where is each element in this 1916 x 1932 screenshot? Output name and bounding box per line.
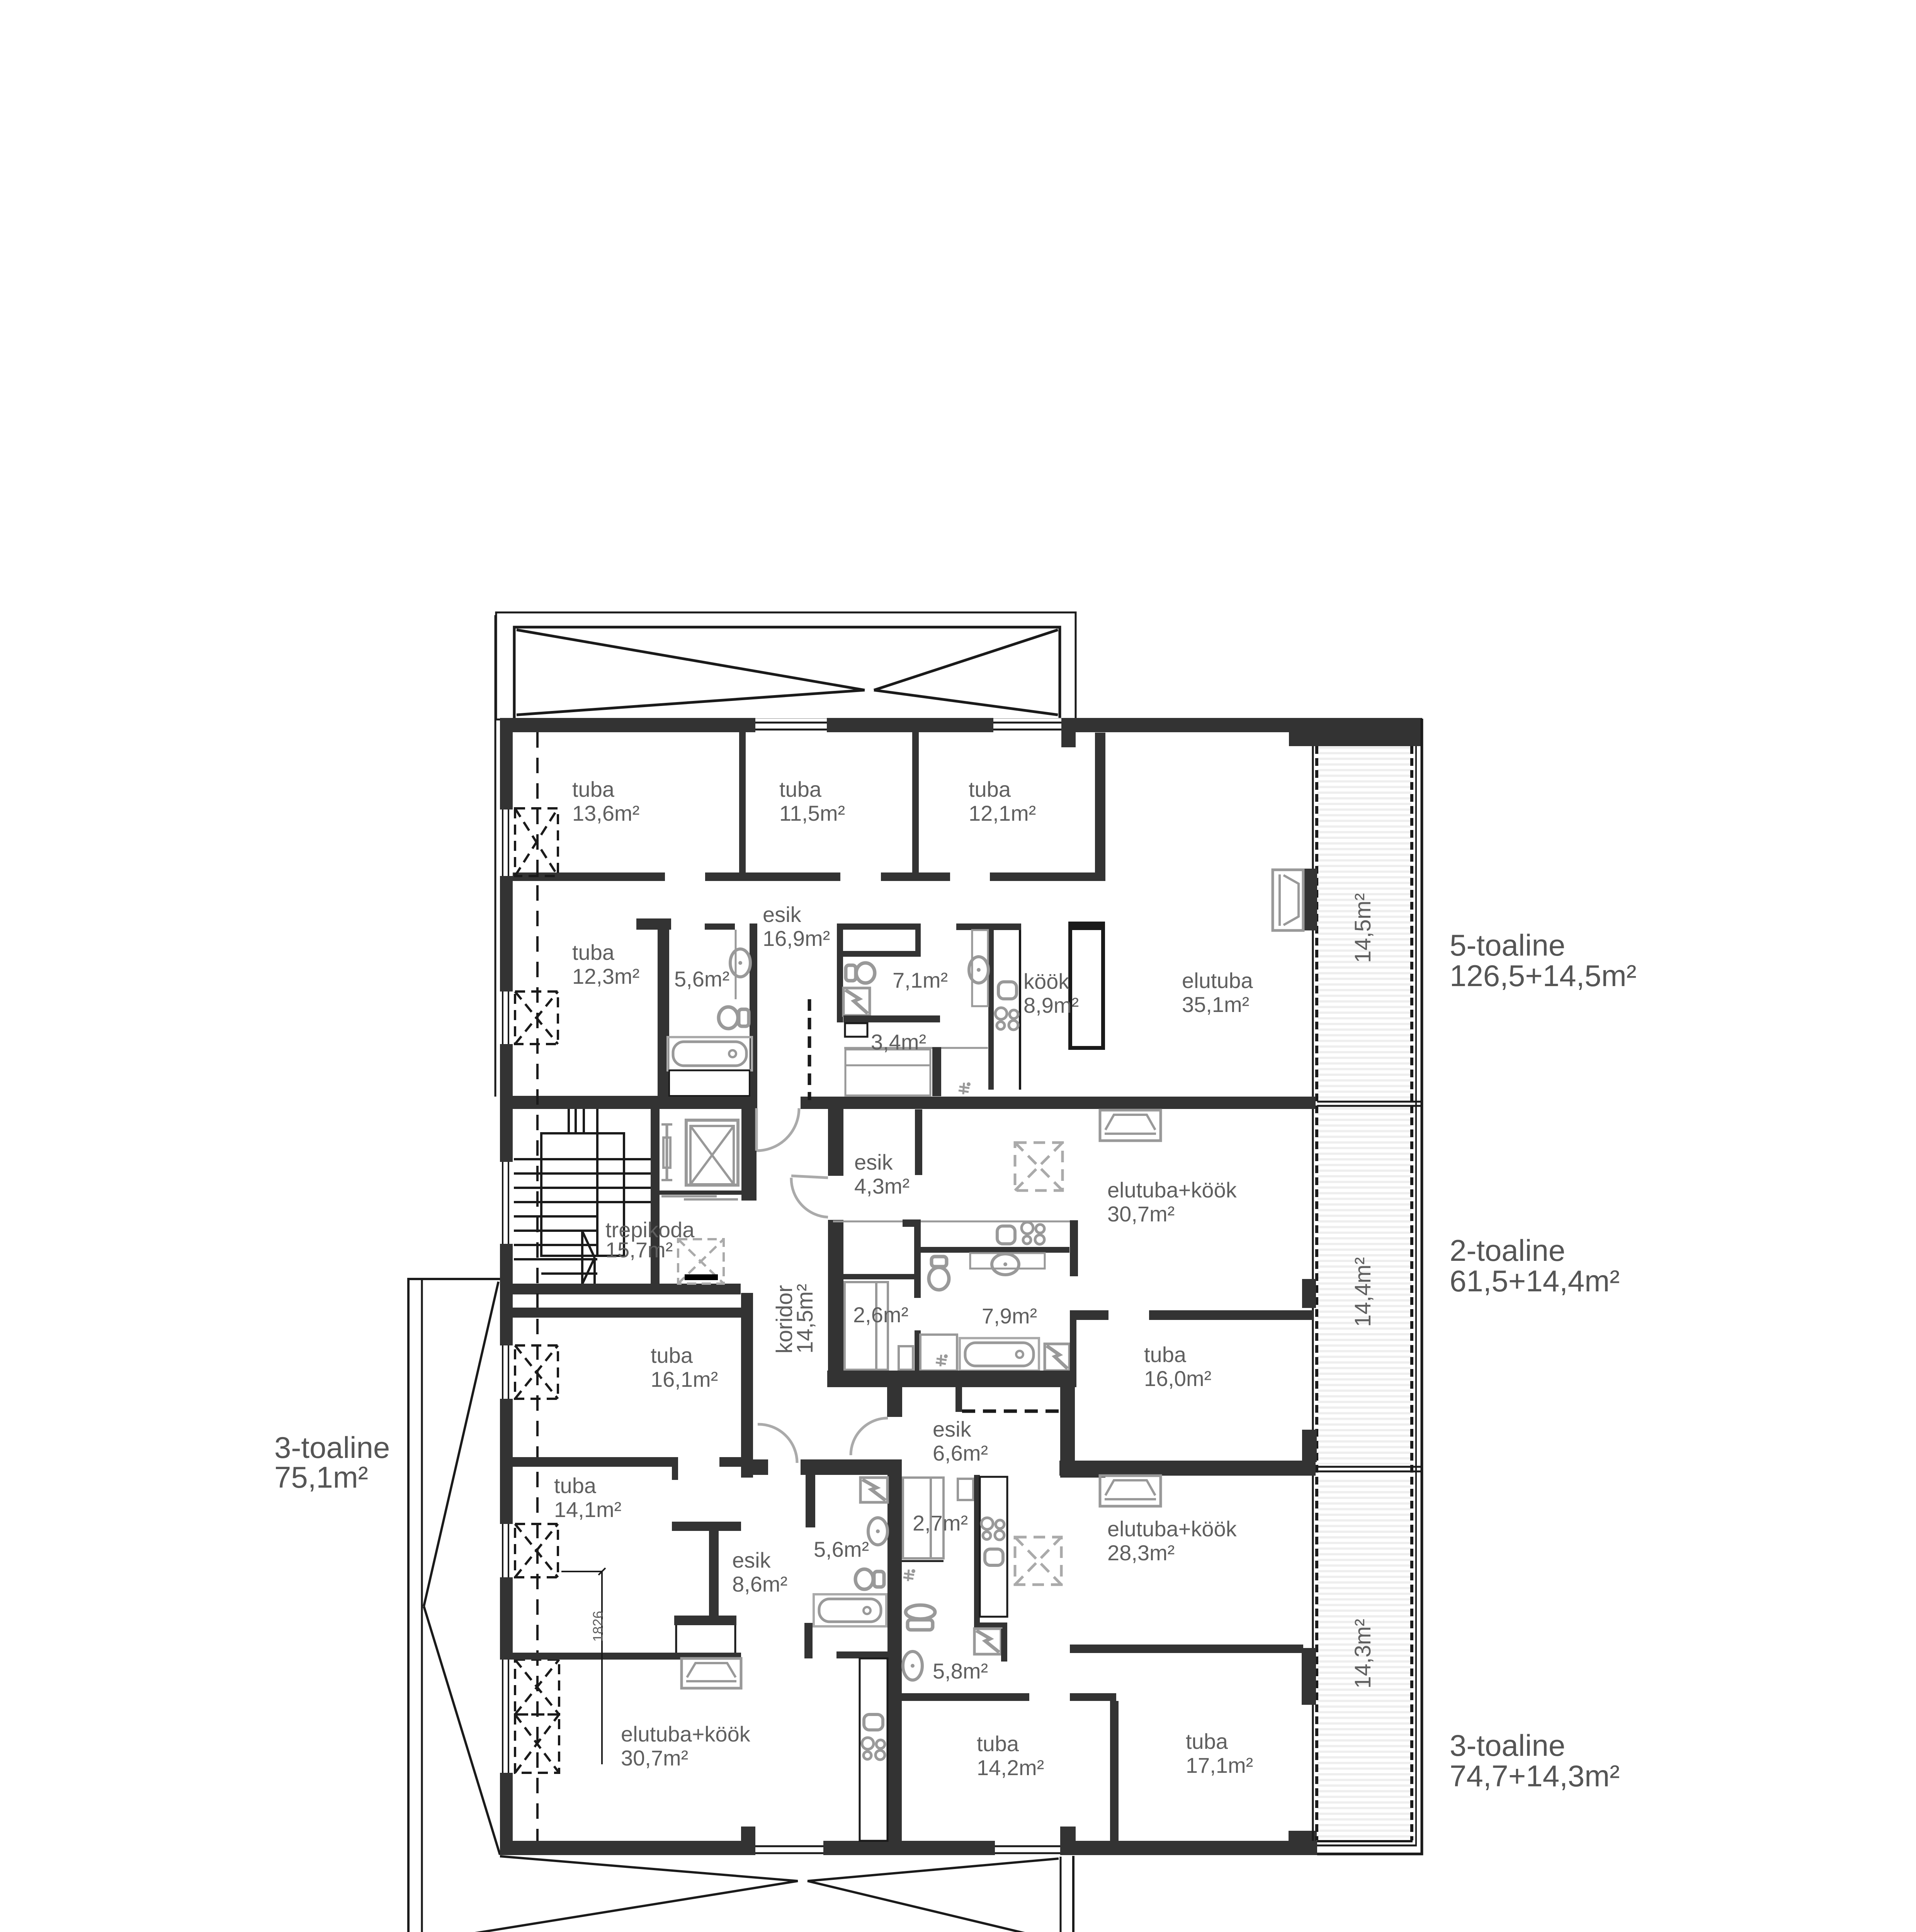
svg-text:tuba: tuba: [1186, 1729, 1228, 1753]
svg-text:12,3m²: 12,3m²: [572, 964, 639, 988]
svg-text:4,3m²: 4,3m²: [854, 1174, 910, 1198]
svg-text:28,3m²: 28,3m²: [1107, 1541, 1175, 1565]
svg-text:esik: esik: [854, 1150, 893, 1174]
svg-text:1826: 1826: [590, 1611, 606, 1642]
svg-text:16,9m²: 16,9m²: [763, 926, 830, 951]
svg-text:esik: esik: [732, 1548, 771, 1572]
svg-text:elutuba: elutuba: [1182, 968, 1253, 993]
svg-text:14,2m²: 14,2m²: [977, 1755, 1044, 1780]
svg-text:3-toaline: 3-toaline: [274, 1430, 390, 1464]
svg-text:tuba: tuba: [977, 1731, 1019, 1756]
svg-text:74,7+14,3m²: 74,7+14,3m²: [1450, 1759, 1620, 1793]
svg-text:7,1m²: 7,1m²: [893, 968, 948, 992]
svg-text:14,1m²: 14,1m²: [554, 1497, 621, 1522]
svg-text:30,7m²: 30,7m²: [621, 1746, 688, 1770]
svg-text:köök: köök: [1023, 969, 1069, 993]
svg-text:5,6m²: 5,6m²: [814, 1537, 869, 1561]
svg-text:5,8m²: 5,8m²: [933, 1659, 988, 1683]
svg-text:6,6m²: 6,6m²: [933, 1441, 988, 1465]
svg-text:3-toaline: 3-toaline: [1450, 1728, 1565, 1762]
svg-text:tuba: tuba: [969, 777, 1011, 801]
svg-text:tuba: tuba: [554, 1473, 597, 1498]
svg-text:elutuba+köök: elutuba+köök: [1107, 1517, 1237, 1541]
svg-text:5,6m²: 5,6m²: [674, 967, 729, 991]
svg-text:16,1m²: 16,1m²: [651, 1367, 718, 1391]
svg-text:11,5m²: 11,5m²: [779, 801, 845, 825]
svg-text:30,7m²: 30,7m²: [1107, 1202, 1175, 1226]
svg-text:13,6m²: 13,6m²: [572, 801, 639, 825]
svg-text:3,4m²: 3,4m²: [871, 1030, 926, 1054]
svg-text:tuba: tuba: [779, 777, 822, 801]
svg-text:esik: esik: [763, 902, 802, 927]
svg-text:5-toaline: 5-toaline: [1450, 928, 1565, 962]
svg-text:14,5m²: 14,5m²: [792, 1284, 818, 1354]
svg-text:elutuba+köök: elutuba+köök: [621, 1722, 751, 1746]
svg-text:esik: esik: [933, 1417, 972, 1441]
svg-text:61,5+14,4m²: 61,5+14,4m²: [1450, 1264, 1620, 1298]
svg-text:7,9m²: 7,9m²: [982, 1304, 1037, 1328]
svg-text:35,1m²: 35,1m²: [1182, 992, 1249, 1017]
svg-text:2,7m²: 2,7m²: [913, 1511, 968, 1535]
svg-text:14,4m²: 14,4m²: [1350, 1257, 1375, 1327]
svg-text:2,6m²: 2,6m²: [853, 1303, 908, 1327]
svg-text:14,5m²: 14,5m²: [1350, 893, 1375, 963]
svg-text:17,1m²: 17,1m²: [1186, 1753, 1253, 1777]
svg-text:126,5+14,5m²: 126,5+14,5m²: [1450, 959, 1637, 993]
svg-text:75,1m²: 75,1m²: [274, 1460, 368, 1494]
svg-text:tuba: tuba: [572, 777, 615, 801]
svg-text:8,9m²: 8,9m²: [1023, 993, 1079, 1017]
svg-text:14,3m²: 14,3m²: [1350, 1619, 1375, 1689]
svg-text:tuba: tuba: [1144, 1342, 1187, 1367]
svg-text:tuba: tuba: [572, 940, 615, 964]
svg-text:2-toaline: 2-toaline: [1450, 1233, 1565, 1267]
svg-text:8,6m²: 8,6m²: [732, 1572, 787, 1596]
svg-text:16,0m²: 16,0m²: [1144, 1366, 1211, 1391]
svg-text:elutuba+köök: elutuba+köök: [1107, 1178, 1237, 1202]
svg-text:12,1m²: 12,1m²: [969, 801, 1036, 825]
svg-text:tuba: tuba: [651, 1343, 693, 1367]
svg-text:15,7m²: 15,7m²: [605, 1238, 673, 1262]
